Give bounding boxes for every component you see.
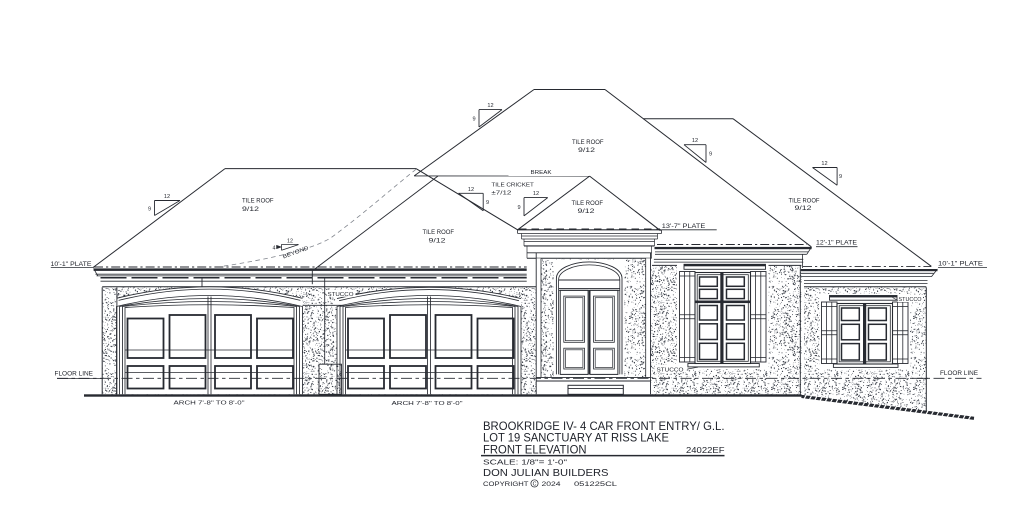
svg-text:TILE ROOF: TILE ROOF <box>789 198 820 204</box>
svg-text:TILE ROOF: TILE ROOF <box>572 140 604 146</box>
svg-text:FRONT ELEVATION: FRONT ELEVATION <box>483 443 587 457</box>
svg-text:C: C <box>533 482 537 488</box>
svg-text:9: 9 <box>839 174 842 180</box>
svg-text:COPYRIGHT: COPYRIGHT <box>483 481 529 488</box>
svg-text:9: 9 <box>148 206 151 212</box>
svg-text:STUCCO: STUCCO <box>657 367 685 373</box>
svg-text:DON JULIAN BUILDERS: DON JULIAN BUILDERS <box>483 467 609 479</box>
svg-text:12: 12 <box>164 194 170 200</box>
svg-text:9/12: 9/12 <box>578 148 596 154</box>
svg-text:TILE ROOF: TILE ROOF <box>242 199 274 205</box>
svg-text:9: 9 <box>472 117 475 123</box>
svg-text:BREAK: BREAK <box>531 170 552 176</box>
svg-text:9: 9 <box>709 152 712 158</box>
svg-text:STUCCO: STUCCO <box>328 292 355 298</box>
svg-text:12: 12 <box>287 239 293 245</box>
svg-text:9/12: 9/12 <box>578 209 596 215</box>
svg-text:2024: 2024 <box>542 481 561 488</box>
svg-text:9: 9 <box>486 200 489 206</box>
svg-text:9/12: 9/12 <box>795 206 813 212</box>
svg-text:9/12: 9/12 <box>242 207 260 213</box>
svg-text:051225CL: 051225CL <box>574 481 617 488</box>
svg-text:12: 12 <box>692 138 698 144</box>
svg-text:±7/12: ±7/12 <box>491 191 511 197</box>
svg-text:9/12: 9/12 <box>429 239 447 245</box>
svg-text:10'-1" PLATE: 10'-1" PLATE <box>938 261 983 267</box>
svg-text:10'-1" PLATE: 10'-1" PLATE <box>51 262 92 268</box>
svg-text:TILE ROOF: TILE ROOF <box>572 201 604 207</box>
svg-text:ARCH 7'-8" TO 8'-0": ARCH 7'-8" TO 8'-0" <box>174 400 245 406</box>
svg-text:12: 12 <box>487 103 493 109</box>
svg-text:FLOOR LINE: FLOOR LINE <box>940 371 978 377</box>
svg-text:9: 9 <box>517 205 520 211</box>
svg-text:TILE CRICKET: TILE CRICKET <box>491 182 534 188</box>
svg-text:24022EF: 24022EF <box>686 446 725 455</box>
svg-text:12: 12 <box>821 161 827 167</box>
svg-text:FLOOR LINE: FLOOR LINE <box>55 372 94 378</box>
svg-text:12'-1" PLATE: 12'-1" PLATE <box>816 241 857 247</box>
svg-text:4: 4 <box>273 246 276 252</box>
svg-text:TILE ROOF: TILE ROOF <box>423 230 455 236</box>
svg-text:12: 12 <box>533 191 539 197</box>
svg-text:SCALE: 1/8"= 1'-0": SCALE: 1/8"= 1'-0" <box>483 458 567 467</box>
svg-text:12: 12 <box>468 187 474 193</box>
svg-text:STUCCO: STUCCO <box>899 297 923 303</box>
svg-text:13'-7" PLATE: 13'-7" PLATE <box>662 224 706 230</box>
svg-text:ARCH 7'-8" TO 8'-0": ARCH 7'-8" TO 8'-0" <box>392 401 463 407</box>
